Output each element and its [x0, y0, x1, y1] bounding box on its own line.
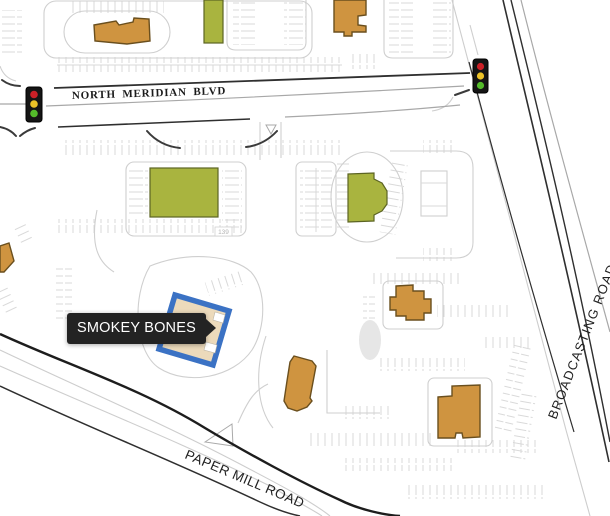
building-cross-right	[390, 285, 431, 320]
tooltip-label: SMOKEY BONES	[77, 320, 196, 336]
building-left-edge	[0, 243, 14, 272]
road-label-paper-mill: PAPER MILL ROAD	[183, 447, 307, 511]
traffic-light-icon	[26, 87, 42, 122]
landscape-patch	[359, 320, 381, 360]
building-green-right	[348, 173, 387, 222]
building-bottom-right	[438, 385, 480, 438]
north-meridian-road	[0, 73, 470, 127]
tooltip-arrow-icon	[206, 319, 216, 337]
building-top-right	[334, 0, 366, 36]
building-green-center	[150, 168, 218, 217]
site-plan-svg: NORTH MERIDIAN BLVD BROADCASTING ROAD PA…	[0, 0, 610, 516]
smokey-bones-tooltip[interactable]: SMOKEY BONES	[67, 313, 206, 344]
building-bottom-center	[284, 356, 316, 411]
stall-count-label: 139	[218, 229, 229, 236]
site-plan-map[interactable]: NORTH MERIDIAN BLVD BROADCASTING ROAD PA…	[0, 0, 610, 516]
building-green-top	[204, 0, 223, 43]
building-top-left	[94, 18, 150, 44]
traffic-light-icon	[473, 59, 488, 93]
